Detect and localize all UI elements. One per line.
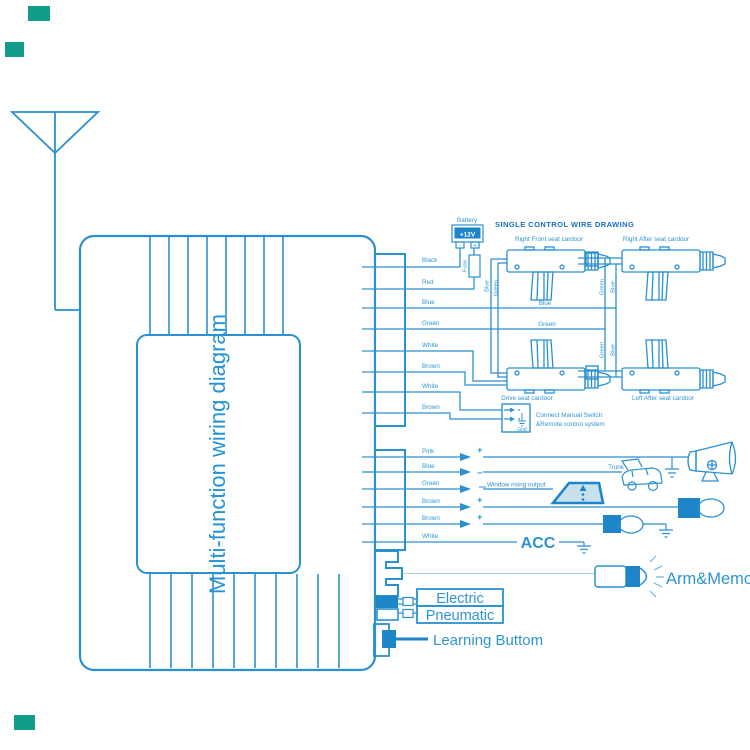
wire-label: White (422, 342, 439, 349)
actuator-label-left-after: Left After seat cardoor (632, 395, 694, 402)
ground-icon-flasher (659, 524, 673, 537)
svg-text:Blue: Blue (485, 280, 491, 292)
unit-title: Multi-function wiring diagram (205, 314, 230, 594)
pneumatic-label: Pneumatic (426, 608, 495, 624)
wire-label: White (422, 383, 439, 390)
led-icon (595, 556, 664, 597)
flasher-icon-1 (678, 498, 724, 518)
window-icon (553, 483, 603, 503)
window-output-note: Window rising output (487, 482, 546, 489)
wiring-diagram-page: Multi-function wiring diagram (0, 0, 750, 750)
battery-neg-terminal: - (459, 243, 461, 250)
actuator-right-front (507, 247, 610, 300)
wire-arrowheads (460, 453, 471, 528)
actuator-label-right-front: Right Front seat cardoor (515, 236, 583, 243)
svg-text:Blue: Blue (422, 463, 435, 470)
wire-label: Black (422, 257, 438, 264)
ground-icon-acc (577, 542, 591, 553)
electric-label: Electric (436, 591, 484, 607)
svg-text:Green: Green (494, 280, 500, 296)
ground-icon-siren (665, 457, 679, 477)
fuse-icon (469, 255, 480, 277)
sign-pink-plus: + (477, 445, 483, 456)
svg-text:Green: Green (600, 279, 606, 295)
sign-brown1-plus: + (477, 495, 483, 506)
svg-text:Brown: Brown (422, 498, 440, 505)
sign-blue-minus: − (477, 468, 483, 479)
heatsink-ribs-bottom (150, 574, 339, 668)
svg-text:Brown: Brown (422, 515, 440, 522)
car-trunk-icon (622, 459, 662, 491)
svg-text:Green: Green (422, 480, 440, 487)
svg-text:White: White (422, 533, 439, 540)
siren-icon (688, 442, 736, 481)
connector-1-wire-labels: Black Red Blue Green White Brown White B… (422, 257, 440, 411)
manual-switch-text-1: Connect Manual Switch (536, 412, 603, 419)
output-bracket-connector (375, 551, 402, 596)
fuse-label: Fuse (463, 260, 469, 272)
wire-label: Brown (422, 363, 440, 370)
learning-button-connector[interactable] (374, 624, 428, 656)
connector-2-wire-labels: Pink Blue Green Brown Brown White (422, 448, 440, 540)
actuator-label-right-after: Right After seat cardoor (623, 236, 689, 243)
bus-label-blue: Blue (539, 300, 552, 307)
wire-label: Red (422, 279, 434, 286)
svg-text:Green: Green (600, 342, 606, 358)
svg-text:Blue: Blue (611, 281, 617, 293)
svg-text:Pink: Pink (422, 448, 435, 455)
gnd-label: Gnd (517, 427, 527, 433)
battery-label: Battery (457, 217, 478, 224)
wire-label: Blue (422, 299, 435, 306)
learning-button-label: Learning Buttom (433, 632, 543, 649)
sign-brown2-plus: + (477, 512, 483, 523)
actuator-label-drive: Drive seat cardoor (501, 395, 552, 402)
bus-label-green: Green (538, 321, 556, 328)
manual-switch-text-2: &Remote control system (536, 421, 605, 428)
wire-label: Green (422, 320, 440, 327)
actuator-right-after (622, 247, 725, 300)
vertical-wire-labels: Blue Green Green Blue Green Blue (485, 279, 617, 358)
battery-voltage: +12V (460, 232, 476, 239)
section-title: SINGLE CONTROL WIRE DRAWING (495, 220, 634, 229)
actuator-left-after (622, 340, 725, 393)
battery-pos-terminal: + (473, 243, 477, 250)
arm-memory-label: Arm&Memory (666, 570, 750, 588)
wire-label: Brown (422, 404, 440, 411)
diagram-canvas: Multi-function wiring diagram (0, 0, 750, 750)
electric-pneumatic-connectors (376, 596, 417, 620)
flasher-icon-2 (603, 515, 643, 533)
connector-block-1 (362, 248, 616, 426)
trunk-label: Trunk (608, 464, 625, 471)
acc-label: ACC (521, 535, 556, 552)
svg-text:Blue: Blue (611, 344, 617, 356)
antenna-icon (12, 112, 98, 310)
